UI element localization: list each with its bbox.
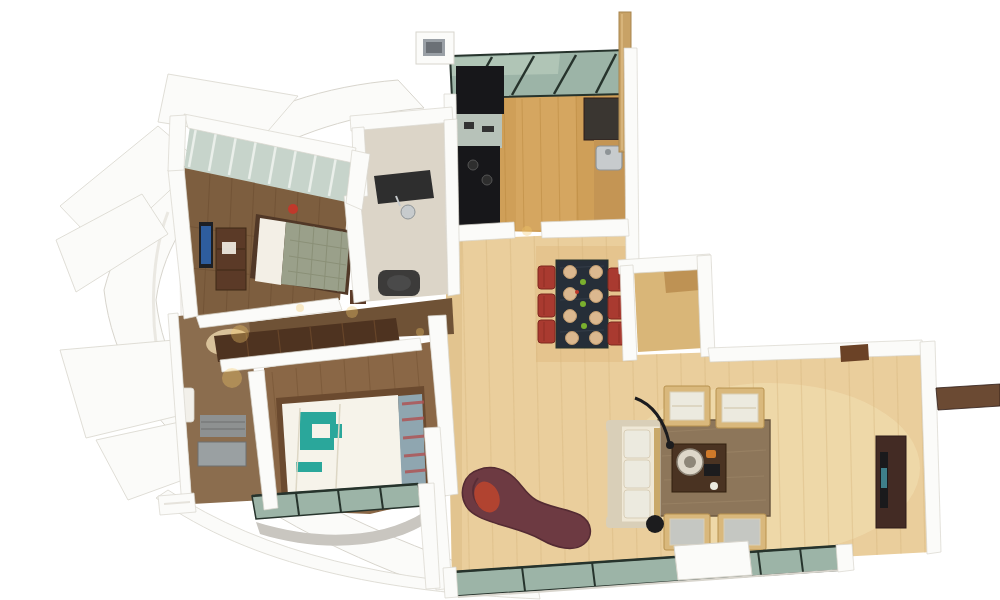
wall <box>443 567 458 598</box>
bed-duvet <box>281 222 350 292</box>
shower-tray <box>198 442 246 466</box>
counter-item <box>482 126 494 132</box>
chair-cushion <box>670 519 704 545</box>
armchair <box>716 388 764 428</box>
floor-plan-render <box>0 0 1000 600</box>
wall <box>541 219 629 238</box>
dining-chair <box>538 320 555 343</box>
bathroom-top <box>354 123 450 302</box>
service-slot-inner <box>426 42 442 53</box>
wall <box>168 115 186 171</box>
kitchen-floor-light <box>516 96 576 230</box>
sofa-cushions <box>624 430 650 518</box>
kitchen-cabinet-upper <box>456 66 504 114</box>
bath-shelves <box>200 415 246 437</box>
table-tablet <box>704 464 720 476</box>
garnish-red <box>575 290 579 294</box>
bed-pillows <box>255 218 286 285</box>
floor-plan-canvas <box>0 0 1000 600</box>
tv-console <box>876 436 906 528</box>
bed2-pillows <box>398 394 426 488</box>
tray-center <box>684 456 696 468</box>
toilet-seat <box>387 275 411 291</box>
kitchen-cabinet-lower <box>456 146 500 228</box>
balcony-threshold <box>674 541 752 580</box>
tv-screen <box>201 226 211 264</box>
tv-glint <box>881 468 887 488</box>
dining-chair <box>538 266 555 289</box>
dining-chair <box>538 294 555 317</box>
red-cushion <box>288 204 298 214</box>
dresser <box>216 228 246 290</box>
wall-console <box>840 344 869 362</box>
kitchen-counter <box>456 114 502 148</box>
armchair <box>664 386 710 426</box>
wall <box>620 265 637 361</box>
lamp-base <box>646 515 664 533</box>
dresser-item <box>222 242 236 254</box>
lamp-head <box>666 441 674 449</box>
cup <box>710 482 718 490</box>
orange-accent <box>706 450 716 458</box>
basin <box>401 205 415 219</box>
sofa-backrest <box>608 426 622 522</box>
faucet <box>605 149 611 155</box>
hob-burner <box>482 175 492 185</box>
hob-burner <box>468 160 478 170</box>
door-mat <box>664 269 700 293</box>
wall <box>836 544 854 572</box>
vanity-counter <box>374 170 434 204</box>
adjacent-structure <box>936 384 1000 410</box>
counter-item <box>464 122 474 129</box>
entrance-foyer <box>634 266 704 352</box>
dining-set <box>538 260 625 348</box>
sofa-wood-edge <box>654 428 660 520</box>
